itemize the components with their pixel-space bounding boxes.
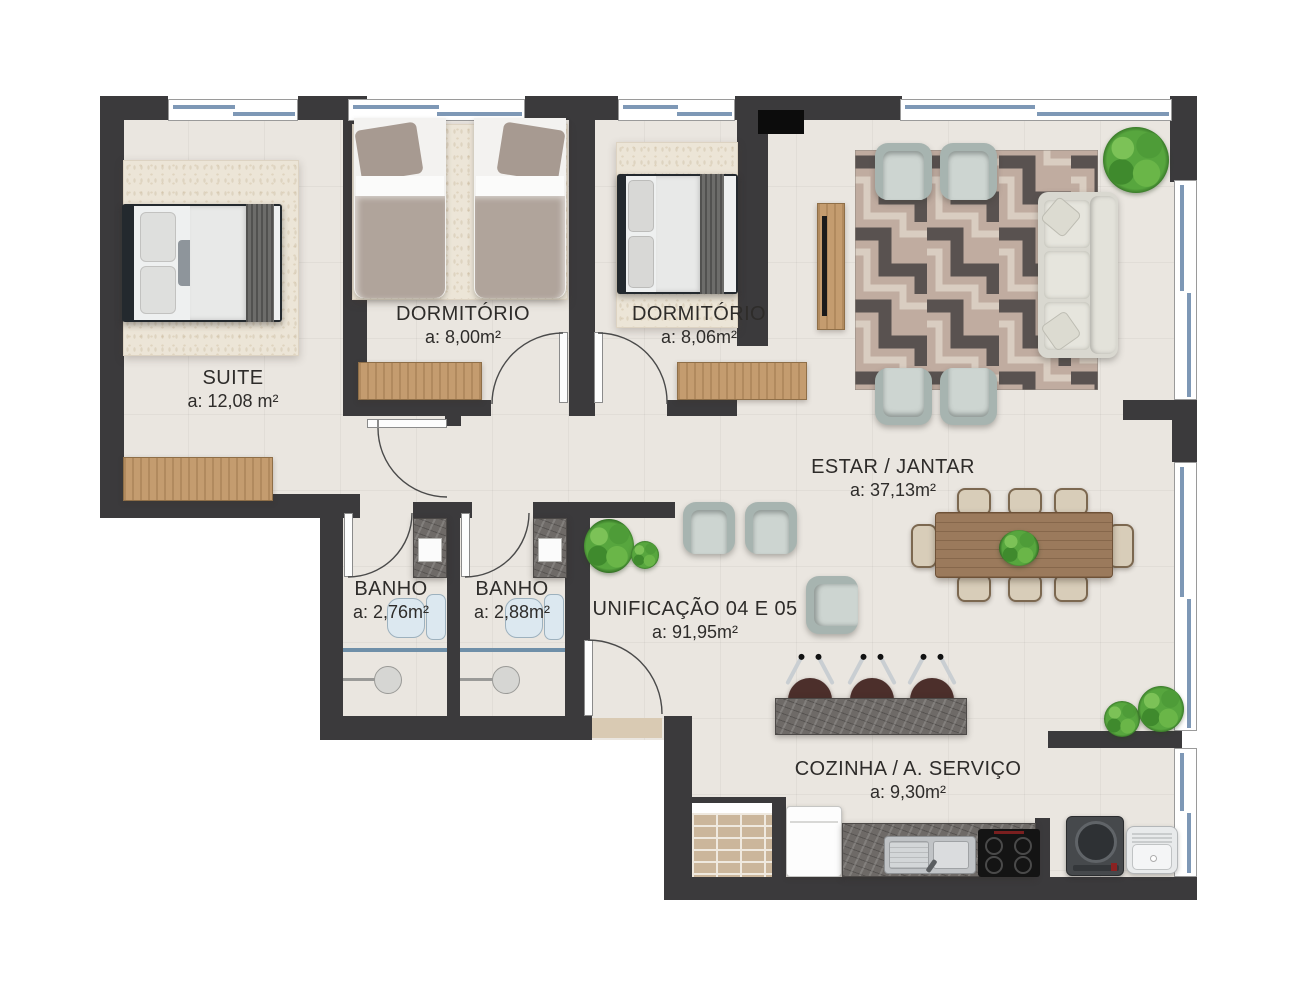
wall-dorm1-bottom bbox=[343, 400, 491, 416]
window-dining-right bbox=[1174, 462, 1197, 731]
wall-corner-ne bbox=[1170, 96, 1197, 182]
armchair bbox=[875, 143, 932, 200]
wall-dorm-divider bbox=[569, 96, 595, 416]
wall-bottom bbox=[664, 877, 1197, 900]
room-area: a: 9,30m² bbox=[795, 781, 1022, 803]
window-dorm2 bbox=[618, 99, 735, 121]
burner bbox=[985, 856, 1003, 874]
dorm2-throw-blanket bbox=[700, 174, 724, 294]
room-label-dormitorio2: DORMITÓRIO a: 8,06m² bbox=[632, 303, 766, 348]
refrigerator bbox=[786, 806, 842, 877]
room-label-cozinha: COZINHA / A. SERVIÇO a: 9,30m² bbox=[795, 758, 1022, 803]
door-leaf-banho2 bbox=[461, 513, 470, 577]
sofa-back bbox=[1090, 196, 1116, 354]
window-suite bbox=[168, 99, 298, 121]
sofa-cushion bbox=[1044, 251, 1090, 299]
table-centerpiece-plant bbox=[999, 530, 1039, 566]
niche-gap bbox=[692, 803, 772, 813]
suite-dresser bbox=[123, 457, 273, 501]
dorm2-pillow bbox=[628, 236, 654, 288]
armchair bbox=[745, 502, 797, 554]
room-label-dormitorio1: DORMITÓRIO a: 8,00m² bbox=[396, 303, 530, 348]
dorm2-duvet bbox=[656, 176, 702, 292]
door-jamb bbox=[367, 419, 378, 428]
burner bbox=[1014, 856, 1032, 874]
room-label-estar-jantar: ESTAR / JANTAR a: 37,13m² bbox=[811, 456, 975, 501]
room-name: BANHO bbox=[353, 578, 429, 601]
room-area: a: 2,88m² bbox=[474, 601, 550, 623]
suite-bed bbox=[122, 204, 282, 322]
wall-banho1-left bbox=[320, 502, 343, 740]
entry-doormat bbox=[592, 718, 662, 738]
banho2-shower-arm bbox=[460, 678, 495, 681]
plant bbox=[631, 541, 659, 569]
fridge-door-line bbox=[790, 821, 838, 823]
wall-dorm2-bottom bbox=[667, 400, 737, 416]
door-leaf-dorm2 bbox=[594, 332, 603, 403]
wall-banho-top bbox=[533, 502, 675, 518]
room-label-banho1: BANHO a: 2,76m² bbox=[353, 578, 429, 623]
dorm1-bed bbox=[354, 118, 446, 298]
duct-shaft bbox=[758, 110, 804, 134]
dorm1-duvet bbox=[355, 196, 445, 298]
dorm1-bench bbox=[358, 362, 482, 400]
wall-door-stub bbox=[445, 414, 461, 426]
suite-pillow bbox=[140, 212, 176, 262]
room-area: a: 8,06m² bbox=[632, 326, 766, 348]
plant bbox=[1138, 686, 1184, 732]
door-leaf-dorm1 bbox=[559, 332, 568, 403]
door-leaf-suite bbox=[378, 419, 447, 428]
dining-chair bbox=[911, 524, 937, 568]
footprint-cutout bbox=[320, 740, 666, 993]
dorm2-bench bbox=[677, 362, 807, 400]
banho2-shower-glass bbox=[460, 648, 565, 652]
wall-banho-divider bbox=[447, 502, 460, 740]
wall-banho-bottom bbox=[320, 716, 592, 740]
cooktop-controls bbox=[994, 831, 1024, 834]
suite-throw-blanket bbox=[246, 204, 274, 322]
armchair bbox=[940, 143, 997, 200]
wall-right-stub bbox=[1123, 400, 1197, 420]
door-leaf-banho1 bbox=[344, 513, 353, 577]
dining-chair bbox=[1054, 574, 1088, 602]
armchair bbox=[875, 368, 932, 425]
plant bbox=[584, 519, 634, 573]
room-area: a: 37,13m² bbox=[811, 479, 975, 501]
banho2-sink bbox=[538, 538, 562, 562]
washing-machine bbox=[1066, 816, 1124, 876]
tub-drain bbox=[1150, 855, 1157, 862]
armchair bbox=[683, 502, 735, 554]
sink-basin bbox=[933, 841, 969, 869]
room-name: SUITE bbox=[187, 367, 278, 390]
dorm2-pillow bbox=[628, 180, 654, 232]
dorm2-bed bbox=[617, 174, 738, 294]
dorm1-duvet bbox=[475, 196, 565, 298]
room-label-unificacao: UNIFICAÇÃO 04 E 05 a: 91,95m² bbox=[592, 598, 797, 643]
room-name: ESTAR / JANTAR bbox=[811, 456, 975, 479]
room-name: COZINHA / A. SERVIÇO bbox=[795, 758, 1022, 781]
room-area: a: 2,76m² bbox=[353, 601, 429, 623]
window-living-right bbox=[1174, 180, 1197, 400]
plant bbox=[1103, 127, 1169, 193]
dining-chair bbox=[1008, 574, 1042, 602]
room-label-suite: SUITE a: 12,08 m² bbox=[187, 367, 278, 412]
dorm1-bed bbox=[474, 118, 566, 298]
burner bbox=[985, 837, 1003, 855]
sofa bbox=[1038, 192, 1118, 358]
plant bbox=[1104, 701, 1140, 737]
laundry-tub bbox=[1126, 826, 1178, 874]
floor-plan: SUITE a: 12,08 m² DORMITÓRIO a: 8,00m² D… bbox=[0, 0, 1300, 993]
room-name: DORMITÓRIO bbox=[632, 303, 766, 326]
sink-basin bbox=[889, 841, 929, 869]
wall-right-stub bbox=[1172, 420, 1197, 462]
banho1-shower-arm bbox=[343, 678, 377, 681]
washer-button bbox=[1111, 863, 1117, 871]
room-name: BANHO bbox=[474, 578, 550, 601]
door-leaf-entry bbox=[584, 640, 593, 716]
washer-drum bbox=[1075, 821, 1117, 863]
armchair bbox=[806, 576, 858, 634]
wall-left bbox=[100, 96, 124, 518]
cooktop bbox=[978, 829, 1040, 877]
room-area: a: 12,08 m² bbox=[187, 390, 278, 412]
tv-panel bbox=[822, 216, 827, 316]
banho1-shower-head bbox=[374, 666, 402, 694]
dining-chair bbox=[957, 574, 991, 602]
room-label-banho2: BANHO a: 2,88m² bbox=[474, 578, 550, 623]
banho1-sink bbox=[418, 538, 442, 562]
wall-entry-corner bbox=[664, 716, 692, 877]
bar-counter bbox=[775, 698, 967, 735]
footprint-cutout bbox=[666, 900, 1300, 993]
room-area: a: 91,95m² bbox=[592, 621, 797, 643]
dorm1-pillow bbox=[496, 121, 565, 182]
wall-niche-stub bbox=[772, 797, 786, 877]
burner bbox=[1014, 837, 1032, 855]
room-name: UNIFICAÇÃO 04 E 05 bbox=[592, 598, 797, 621]
banho1-shower-glass bbox=[343, 648, 447, 652]
banho2-shower-head bbox=[492, 666, 520, 694]
entry-brick-niche bbox=[692, 813, 772, 877]
tub-washboard bbox=[1132, 831, 1172, 843]
suite-pillow bbox=[140, 266, 176, 314]
room-area: a: 8,00m² bbox=[396, 326, 530, 348]
armchair bbox=[940, 368, 997, 425]
kitchen-sink bbox=[884, 836, 976, 874]
room-name: DORMITÓRIO bbox=[396, 303, 530, 326]
footprint-cutout bbox=[0, 518, 320, 993]
window-living-top bbox=[900, 99, 1172, 121]
dorm1-pillow bbox=[354, 121, 423, 182]
suite-duvet bbox=[190, 206, 248, 320]
